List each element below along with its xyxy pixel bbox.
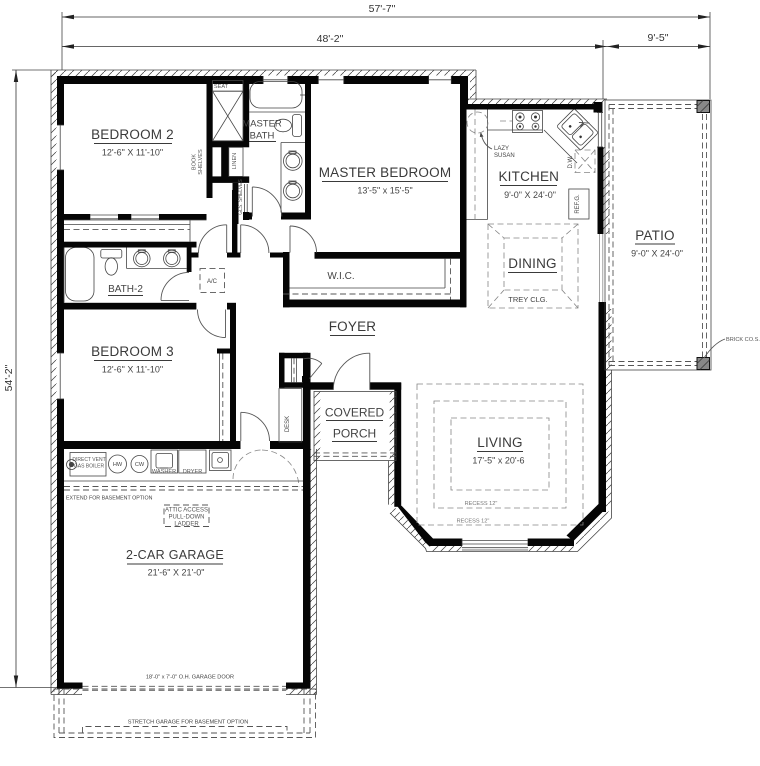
svg-text:HW: HW xyxy=(113,462,123,468)
svg-text:BATH: BATH xyxy=(250,131,275,142)
svg-text:ATTIC ACCESS: ATTIC ACCESS xyxy=(165,508,208,514)
svg-text:RECESS 12": RECESS 12" xyxy=(465,501,498,507)
svg-text:12'-6" X 11'-10": 12'-6" X 11'-10" xyxy=(102,148,163,158)
svg-text:12'-6" X 11'-10": 12'-6" X 11'-10" xyxy=(102,365,163,375)
svg-text:A/C: A/C xyxy=(207,279,218,285)
svg-text:SHELVES: SHELVES xyxy=(198,149,204,175)
svg-text:13'-5" x 15'-5": 13'-5" x 15'-5" xyxy=(357,186,412,196)
svg-text:BATH-2: BATH-2 xyxy=(108,284,143,295)
svg-text:BRICK CO.S.: BRICK CO.S. xyxy=(726,337,760,343)
svg-text:DIRECT VENT: DIRECT VENT xyxy=(72,457,105,463)
svg-text:BOOK: BOOK xyxy=(192,154,198,170)
svg-text:LINEN: LINEN xyxy=(232,153,238,169)
svg-text:SEAT: SEAT xyxy=(214,84,229,90)
svg-text:21'-6" X 21'-0": 21'-6" X 21'-0" xyxy=(148,568,205,578)
svg-text:PULL-DOWN: PULL-DOWN xyxy=(168,515,204,521)
svg-text:MASTER BEDROOM: MASTER BEDROOM xyxy=(319,165,452,180)
svg-text:LAZY: LAZY xyxy=(494,146,509,152)
svg-text:GAS BOILER: GAS BOILER xyxy=(74,464,105,470)
svg-text:DESK: DESK xyxy=(285,416,291,432)
svg-text:DRYER: DRYER xyxy=(183,469,202,475)
svg-text:BEDROOM 2: BEDROOM 2 xyxy=(91,127,174,142)
svg-text:9'-5": 9'-5" xyxy=(648,32,669,44)
svg-text:SUSAN: SUSAN xyxy=(494,153,515,159)
svg-text:CW: CW xyxy=(135,462,145,468)
svg-text:LIVING: LIVING xyxy=(477,435,522,450)
svg-text:2-CAR GARAGE: 2-CAR GARAGE xyxy=(126,548,224,562)
svg-text:TREY CLG.: TREY CLG. xyxy=(508,295,547,304)
svg-text:54'-2": 54'-2" xyxy=(3,364,15,391)
svg-text:57'-7": 57'-7" xyxy=(369,3,396,15)
svg-text:17'-5" x 20'-6: 17'-5" x 20'-6 xyxy=(472,456,524,466)
svg-text:D.W.: D.W. xyxy=(568,155,574,168)
svg-text:W.I.C.: W.I.C. xyxy=(327,271,354,282)
svg-text:48'-2": 48'-2" xyxy=(317,33,344,45)
svg-text:RECESS 12": RECESS 12" xyxy=(457,519,490,525)
svg-text:STRETCH GARAGE FOR BASEMENT OP: STRETCH GARAGE FOR BASEMENT OPTION xyxy=(128,720,249,726)
svg-text:COVERED: COVERED xyxy=(325,406,385,420)
svg-text:DINING: DINING xyxy=(508,256,556,271)
svg-text:MASTER: MASTER xyxy=(242,119,282,130)
svg-text:9'-0" X 24'-0": 9'-0" X 24'-0" xyxy=(631,249,683,259)
svg-text:PATIO: PATIO xyxy=(635,228,675,243)
svg-text:REF.G.: REF.G. xyxy=(575,194,581,214)
svg-text:PORCH: PORCH xyxy=(333,427,376,441)
svg-text:GLS. SHELVES: GLS. SHELVES xyxy=(238,179,244,215)
svg-text:9'-0" X 24'-0": 9'-0" X 24'-0" xyxy=(504,190,556,200)
svg-text:WASHER: WASHER xyxy=(152,469,176,475)
svg-text:FOYER: FOYER xyxy=(329,319,377,334)
svg-text:EXTEND FOR BASEMENT OPTION: EXTEND FOR BASEMENT OPTION xyxy=(66,496,153,502)
svg-text:BEDROOM 3: BEDROOM 3 xyxy=(91,344,174,359)
svg-text:LADDER: LADDER xyxy=(174,522,199,528)
svg-text:KITCHEN: KITCHEN xyxy=(498,169,559,184)
svg-text:18'-0" x 7'-0" O.H. GARAGE DOO: 18'-0" x 7'-0" O.H. GARAGE DOOR xyxy=(146,675,234,681)
